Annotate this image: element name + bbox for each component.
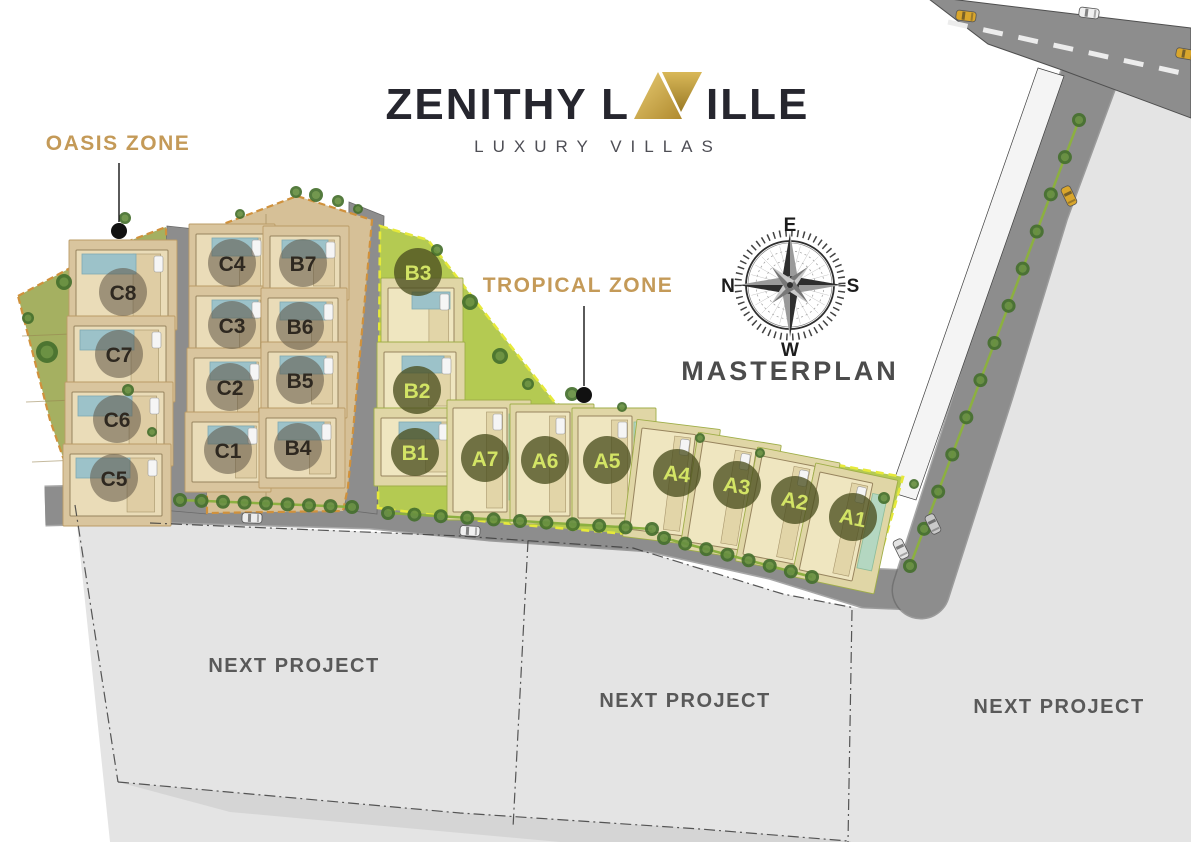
tree-icon [755, 448, 765, 458]
villa-marker-label: C8 [110, 282, 137, 305]
tree-icon [407, 508, 421, 522]
next-project-label-middle: NEXT PROJECT [599, 690, 770, 712]
tree-icon [460, 511, 474, 525]
villa-marker-label: C4 [219, 253, 246, 276]
tree-icon [1058, 150, 1072, 164]
tree-icon [1002, 299, 1016, 313]
tree-icon [324, 499, 338, 513]
tree-icon [173, 493, 187, 507]
villa-marker-label: C7 [106, 344, 133, 367]
tree-icon [281, 497, 295, 511]
masterplan-canvas: C8C7C6C5C4C3C2C1B7B6B5B4B3B2B1A7A6A5A4A3… [0, 0, 1191, 842]
tree-icon [381, 506, 395, 520]
car-icon [460, 525, 480, 536]
oasis-zone-callout: OASIS ZONE [46, 132, 191, 239]
tree-icon [235, 209, 245, 219]
car-icon [955, 10, 976, 22]
villa-marker-b7[interactable]: B7 [279, 239, 327, 287]
tree-icon [122, 384, 134, 396]
compass-east: E [784, 215, 797, 236]
villa-marker-c1[interactable]: C1 [204, 426, 252, 474]
villa-marker-label: B1 [402, 442, 429, 465]
villa-marker-a5[interactable]: A5 [583, 436, 631, 484]
villa-marker-b2[interactable]: B2 [393, 366, 441, 414]
villa-marker-c6[interactable]: C6 [93, 395, 141, 443]
tree-icon [353, 204, 363, 214]
masterplan-title: MASTERPLAN [681, 356, 899, 386]
tree-icon [332, 195, 344, 207]
tree-icon [784, 564, 798, 578]
tropical-zone-label[interactable]: TROPICAL ZONE [483, 274, 674, 297]
villa-marker-label: C1 [215, 440, 242, 463]
tree-icon [147, 427, 157, 437]
villa-marker-label: A4 [662, 461, 692, 487]
tree-icon [805, 570, 819, 584]
villa-marker-c4[interactable]: C4 [208, 239, 256, 287]
oasis-zone-label[interactable]: OASIS ZONE [46, 132, 191, 155]
tropical-zone-dot [576, 387, 592, 403]
tree-icon [56, 274, 72, 290]
tree-icon [909, 479, 919, 489]
tree-icon [903, 559, 917, 573]
compass-south: S [847, 276, 860, 297]
tree-icon [259, 497, 273, 511]
tree-icon [988, 336, 1002, 350]
tree-icon [345, 500, 359, 514]
tree-icon [539, 516, 553, 530]
tree-icon [434, 509, 448, 523]
logo-text-suffix: ILLE [706, 80, 809, 129]
tree-icon [592, 519, 606, 533]
logo-monogram-icon [634, 72, 702, 119]
oasis-zone-dot [111, 223, 127, 239]
tree-icon [1072, 113, 1086, 127]
tree-icon [302, 498, 316, 512]
tree-icon [566, 517, 580, 531]
next-project-label-right: NEXT PROJECT [973, 696, 1144, 718]
tree-icon [931, 485, 945, 499]
compass-north: N [721, 276, 735, 297]
villa-marker-label: C2 [217, 377, 244, 400]
tree-icon [742, 553, 756, 567]
tree-icon [619, 520, 633, 534]
villa-marker-label: C5 [101, 468, 128, 491]
villa-marker-b5[interactable]: B5 [276, 356, 324, 404]
tree-icon [678, 537, 692, 551]
tree-icon [763, 559, 777, 573]
tree-icon [238, 496, 252, 510]
villa-marker-c5[interactable]: C5 [90, 454, 138, 502]
tree-icon [878, 492, 890, 504]
logo-subtitle: LUXURY VILLAS [474, 137, 722, 156]
tree-icon [309, 188, 323, 202]
villa-marker-b1[interactable]: B1 [391, 428, 439, 476]
tree-icon [695, 433, 705, 443]
tree-icon [959, 410, 973, 424]
villa-marker-label: C6 [104, 409, 131, 432]
villa-marker-b6[interactable]: B6 [276, 302, 324, 350]
compass-hub [787, 282, 793, 288]
tree-icon [513, 514, 527, 528]
logo-text-prefix: ZENITHY L [385, 80, 630, 129]
next-project-label-left: NEXT PROJECT [208, 655, 379, 677]
tree-icon [22, 312, 34, 324]
villa-marker-b3[interactable]: B3 [394, 248, 442, 296]
tree-icon [462, 294, 478, 310]
villa-marker-label: B3 [405, 262, 432, 285]
tree-icon [290, 186, 302, 198]
villa-marker-a6[interactable]: A6 [521, 436, 569, 484]
tree-icon [1016, 262, 1030, 276]
tree-icon [216, 495, 230, 509]
villa-marker-label: A6 [532, 450, 559, 473]
villa-marker-c8[interactable]: C8 [99, 268, 147, 316]
villa-marker-label: B2 [404, 380, 431, 403]
tree-icon [720, 548, 734, 562]
car-icon [1078, 7, 1099, 19]
compass-rose: E S W N [721, 215, 859, 361]
tree-icon [1030, 225, 1044, 239]
tree-icon [945, 448, 959, 462]
tree-icon [119, 212, 131, 224]
tree-icon [522, 378, 534, 390]
tree-icon [487, 512, 501, 526]
villa-marker-label: A5 [594, 450, 621, 473]
brand-logo: ZENITHY L ILLE LUXURY VILLAS [385, 72, 809, 156]
tree-icon [645, 522, 659, 536]
tree-icon [1044, 187, 1058, 201]
villa-marker-label: A7 [472, 448, 499, 471]
tree-icon [36, 341, 58, 363]
villa-marker-c3[interactable]: C3 [208, 301, 256, 349]
tree-icon [657, 531, 671, 545]
villa-marker-c2[interactable]: C2 [206, 363, 254, 411]
villa-marker-c7[interactable]: C7 [95, 330, 143, 378]
tree-icon [973, 373, 987, 387]
villa-marker-label: B7 [290, 253, 317, 276]
tree-icon [617, 402, 627, 412]
villa-marker-label: A3 [722, 473, 752, 500]
villa-marker-label: B4 [285, 437, 312, 460]
villa-marker-label: C3 [219, 315, 246, 338]
villa-marker-b4[interactable]: B4 [274, 423, 322, 471]
villa-marker-label: B5 [287, 370, 314, 393]
tree-icon [699, 542, 713, 556]
tree-icon [492, 348, 508, 364]
tree-icon [195, 494, 209, 508]
car-icon [242, 513, 262, 524]
villa-marker-a7[interactable]: A7 [461, 434, 509, 482]
villa-marker-label: B6 [287, 316, 314, 339]
